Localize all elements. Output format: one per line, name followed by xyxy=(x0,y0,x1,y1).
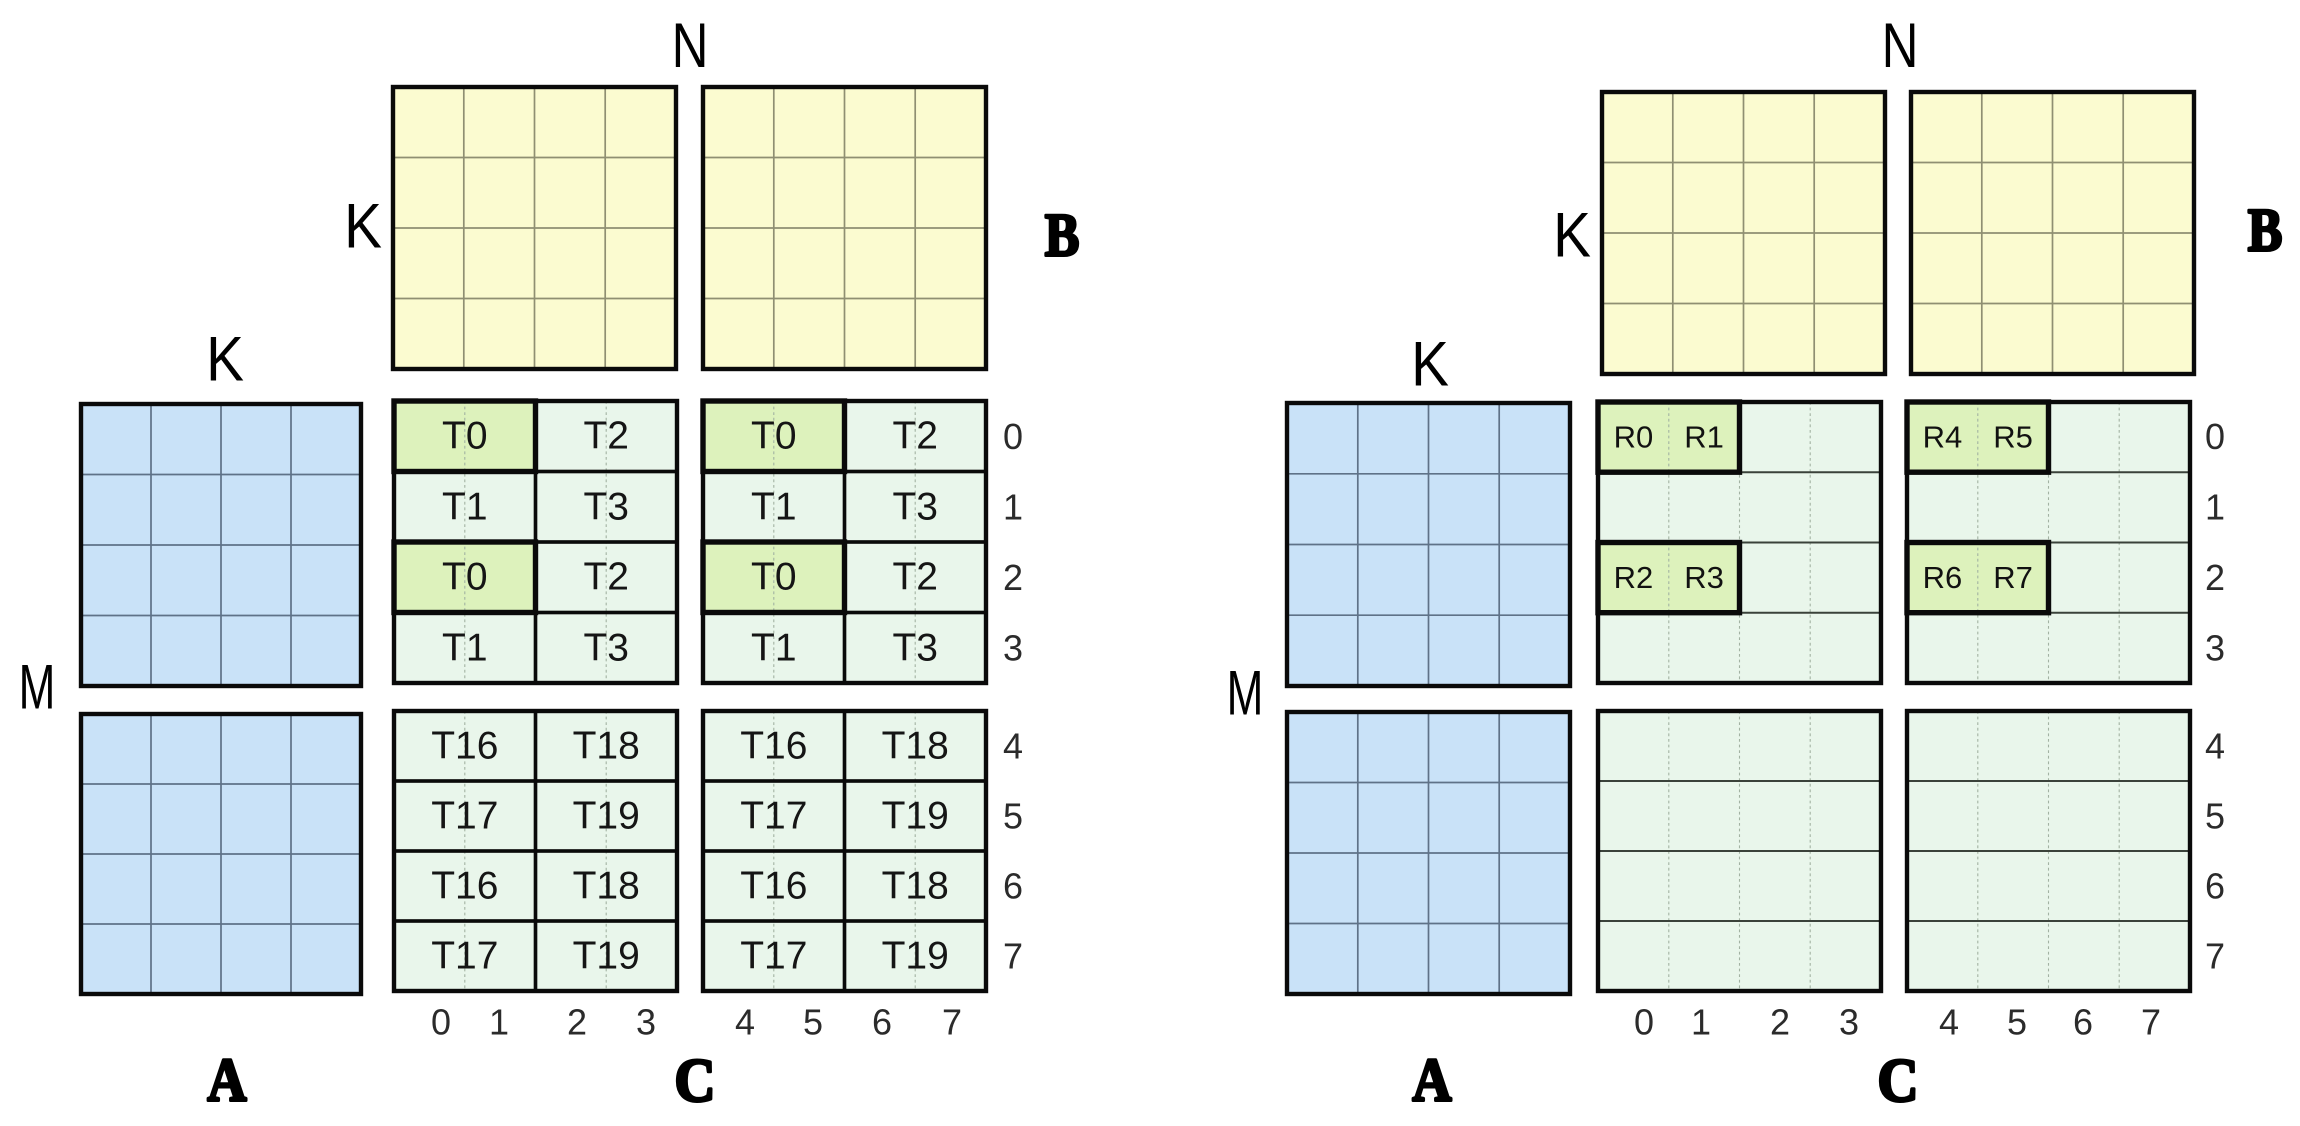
svg-text:T18: T18 xyxy=(573,865,640,908)
svg-text:T17: T17 xyxy=(740,935,807,978)
svg-text:3: 3 xyxy=(636,1002,656,1043)
svg-text:T17: T17 xyxy=(431,935,498,978)
svg-text:R4: R4 xyxy=(1923,420,1963,455)
svg-text:B: B xyxy=(1045,203,1080,270)
svg-text:4: 4 xyxy=(1003,726,1023,767)
svg-text:5: 5 xyxy=(803,1002,823,1043)
svg-text:6: 6 xyxy=(2073,1002,2093,1043)
svg-text:K: K xyxy=(344,191,382,261)
svg-text:2: 2 xyxy=(1770,1002,1790,1043)
svg-text:R2: R2 xyxy=(1614,560,1654,595)
svg-text:T18: T18 xyxy=(882,725,949,768)
svg-text:T1: T1 xyxy=(751,485,797,528)
svg-text:T3: T3 xyxy=(892,485,938,528)
svg-text:6: 6 xyxy=(2205,866,2225,907)
svg-text:B: B xyxy=(2248,198,2283,265)
svg-text:T1: T1 xyxy=(751,626,797,669)
svg-text:0: 0 xyxy=(431,1002,451,1043)
svg-text:R5: R5 xyxy=(1993,420,2033,455)
svg-text:5: 5 xyxy=(2205,796,2225,837)
svg-text:K: K xyxy=(206,324,244,394)
svg-text:T18: T18 xyxy=(882,865,949,908)
svg-text:4: 4 xyxy=(2205,726,2225,767)
svg-text:R1: R1 xyxy=(1684,420,1724,455)
svg-text:M: M xyxy=(1227,658,1264,729)
svg-text:T3: T3 xyxy=(892,626,938,669)
svg-text:2: 2 xyxy=(1003,557,1023,598)
svg-text:7: 7 xyxy=(1003,936,1023,977)
svg-text:6: 6 xyxy=(1003,866,1023,907)
svg-text:T0: T0 xyxy=(751,415,797,458)
svg-text:1: 1 xyxy=(489,1002,509,1043)
svg-text:T17: T17 xyxy=(431,795,498,838)
svg-text:2: 2 xyxy=(2205,557,2225,598)
svg-text:T19: T19 xyxy=(573,795,640,838)
svg-text:K: K xyxy=(1553,200,1591,270)
svg-text:7: 7 xyxy=(942,1002,962,1043)
svg-text:M: M xyxy=(19,652,56,723)
svg-text:T1: T1 xyxy=(442,485,488,528)
svg-text:T19: T19 xyxy=(573,935,640,978)
svg-text:A: A xyxy=(1412,1048,1451,1115)
svg-text:T1: T1 xyxy=(442,626,488,669)
svg-text:R3: R3 xyxy=(1684,560,1724,595)
svg-text:T16: T16 xyxy=(431,865,498,908)
svg-text:6: 6 xyxy=(872,1002,892,1043)
svg-text:R7: R7 xyxy=(1993,560,2033,595)
svg-text:0: 0 xyxy=(1634,1002,1654,1043)
svg-text:T18: T18 xyxy=(573,725,640,768)
svg-text:T17: T17 xyxy=(740,795,807,838)
svg-text:4: 4 xyxy=(735,1002,755,1043)
svg-text:5: 5 xyxy=(2007,1002,2027,1043)
svg-text:1: 1 xyxy=(1003,487,1023,528)
svg-text:A: A xyxy=(207,1048,246,1115)
svg-text:0: 0 xyxy=(2205,416,2225,457)
svg-text:N: N xyxy=(672,11,709,81)
svg-text:T2: T2 xyxy=(583,556,629,599)
svg-text:4: 4 xyxy=(1939,1002,1959,1043)
svg-text:7: 7 xyxy=(2141,1002,2161,1043)
svg-text:5: 5 xyxy=(1003,796,1023,837)
svg-text:1: 1 xyxy=(2205,487,2225,528)
svg-text:N: N xyxy=(1882,11,1919,81)
svg-text:3: 3 xyxy=(1839,1002,1859,1043)
svg-text:K: K xyxy=(1411,329,1449,399)
svg-text:2: 2 xyxy=(567,1002,587,1043)
svg-text:T3: T3 xyxy=(583,626,629,669)
svg-text:C: C xyxy=(675,1047,716,1114)
svg-text:T2: T2 xyxy=(892,556,938,599)
svg-text:7: 7 xyxy=(2205,936,2225,977)
svg-text:T0: T0 xyxy=(751,556,797,599)
svg-text:T16: T16 xyxy=(740,865,807,908)
svg-text:3: 3 xyxy=(2205,628,2225,669)
svg-text:T0: T0 xyxy=(442,415,488,458)
svg-text:R6: R6 xyxy=(1923,560,1963,595)
svg-text:T16: T16 xyxy=(431,725,498,768)
svg-text:1: 1 xyxy=(1691,1002,1711,1043)
svg-text:R0: R0 xyxy=(1614,420,1654,455)
svg-text:T19: T19 xyxy=(882,795,949,838)
svg-text:0: 0 xyxy=(1003,416,1023,457)
svg-text:3: 3 xyxy=(1003,628,1023,669)
svg-text:T19: T19 xyxy=(882,935,949,978)
svg-text:T16: T16 xyxy=(740,725,807,768)
svg-text:T3: T3 xyxy=(583,485,629,528)
svg-text:C: C xyxy=(1878,1047,1919,1114)
svg-text:T2: T2 xyxy=(583,415,629,458)
svg-text:T2: T2 xyxy=(892,415,938,458)
svg-text:T0: T0 xyxy=(442,556,488,599)
